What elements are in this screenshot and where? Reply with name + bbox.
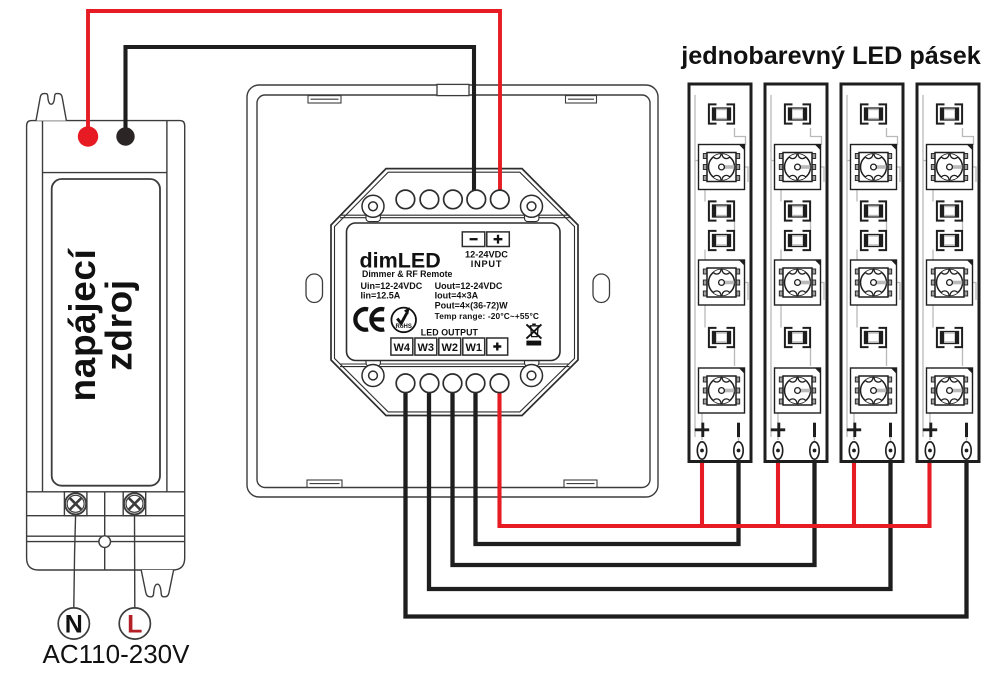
svg-text:W1: W1 [465,342,482,354]
svg-text:Uout=12-24VDC: Uout=12-24VDC [435,281,503,291]
svg-text:12-24VDC: 12-24VDC [465,250,508,260]
svg-text:Iin=12.5A: Iin=12.5A [361,290,401,300]
svg-text:N: N [65,611,83,639]
svg-text:Dimmer & RF Remote: Dimmer & RF Remote [362,269,453,279]
svg-text:Uin=12-24VDC: Uin=12-24VDC [361,281,423,291]
svg-text:L: L [127,611,142,639]
svg-text:zdroj: zdroj [99,279,140,370]
svg-text:LED OUTPUT: LED OUTPUT [421,327,479,337]
svg-text:RoHS: RoHS [396,324,412,330]
svg-text:Temp range: -20°C~+55°C: Temp range: -20°C~+55°C [435,311,539,321]
svg-text:napájecí: napájecí [62,247,103,401]
svg-text:W2: W2 [442,342,459,354]
svg-text:AC110-230V: AC110-230V [43,639,191,669]
svg-text:W3: W3 [418,342,435,354]
svg-text:INPUT: INPUT [471,259,503,269]
svg-text:jednobarevný LED pásek: jednobarevný LED pásek [680,42,982,70]
svg-text:Iout=4×3A: Iout=4×3A [435,290,479,300]
svg-text:W4: W4 [394,342,411,354]
svg-text:Pout=4×(36-72)W: Pout=4×(36-72)W [435,301,509,311]
